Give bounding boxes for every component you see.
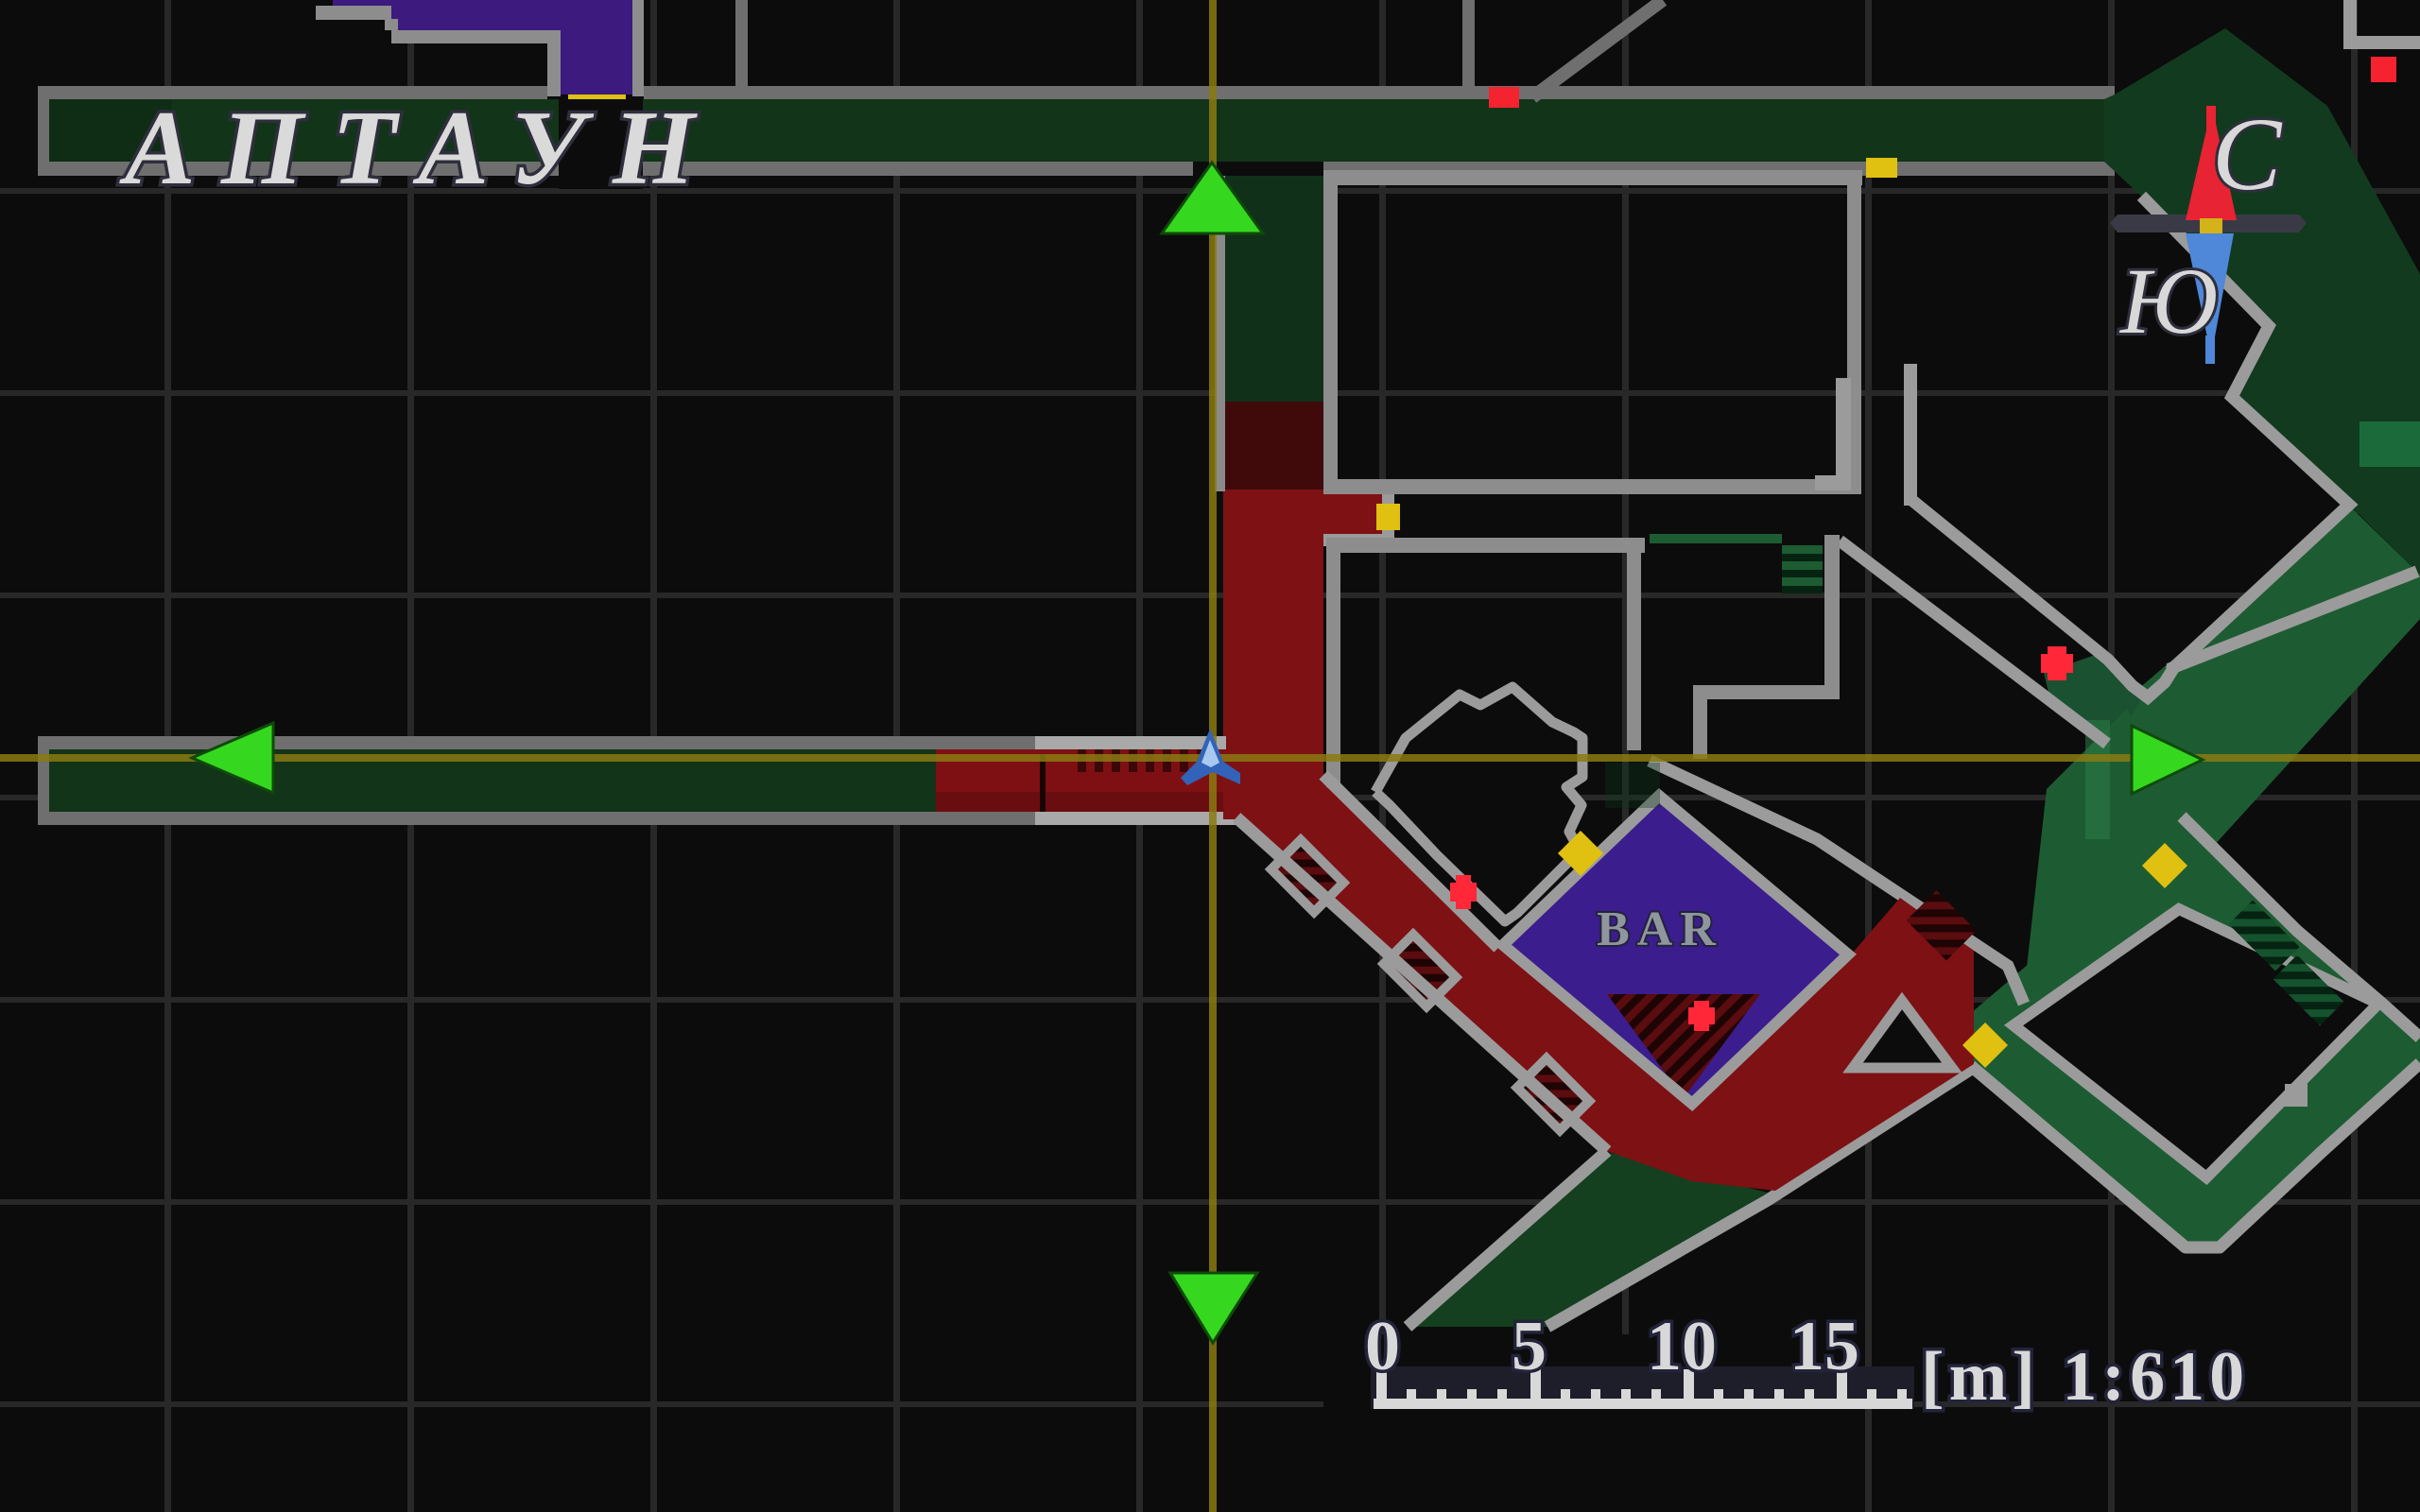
svg-text:С: С xyxy=(2212,96,2283,212)
svg-text:Ю: Ю xyxy=(2118,249,2218,353)
svg-text:[m] 1:610: [m] 1:610 xyxy=(1921,1338,2249,1416)
svg-text:5: 5 xyxy=(1512,1308,1547,1385)
svg-text:15: 15 xyxy=(1789,1308,1859,1385)
svg-text:10: 10 xyxy=(1647,1308,1717,1385)
svg-text:АПТАУН: АПТАУН xyxy=(119,90,723,207)
svg-text:BAR: BAR xyxy=(1597,902,1723,956)
svg-text:0: 0 xyxy=(1365,1308,1400,1385)
